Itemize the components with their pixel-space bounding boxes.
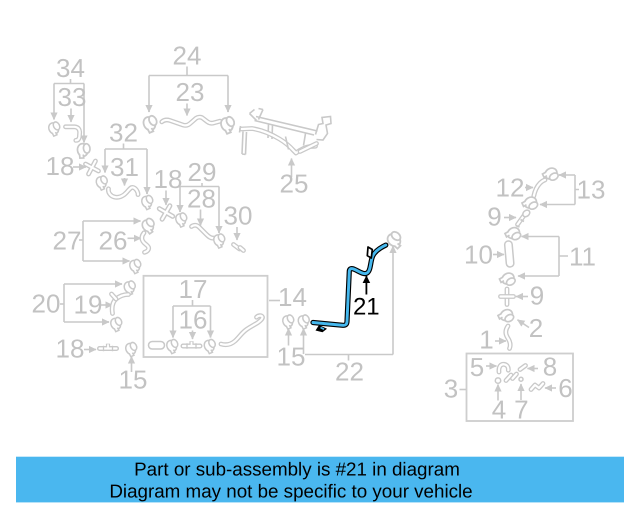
svg-text:20: 20 [32, 289, 61, 319]
svg-text:2: 2 [529, 313, 543, 343]
svg-text:31: 31 [110, 152, 139, 182]
svg-text:15: 15 [277, 342, 306, 372]
svg-text:23: 23 [176, 77, 205, 107]
svg-text:17: 17 [179, 274, 208, 304]
svg-text:5: 5 [470, 352, 484, 382]
svg-text:18: 18 [46, 151, 75, 181]
svg-text:16: 16 [179, 305, 208, 335]
svg-text:13: 13 [577, 175, 606, 205]
svg-text:15: 15 [119, 365, 148, 395]
svg-text:6: 6 [558, 373, 572, 403]
svg-text:11: 11 [569, 242, 596, 272]
svg-text:9: 9 [530, 281, 544, 311]
svg-text:18: 18 [56, 334, 85, 364]
svg-text:4: 4 [492, 395, 506, 425]
svg-text:30: 30 [224, 201, 253, 231]
svg-text:29: 29 [188, 157, 217, 187]
svg-text:10: 10 [464, 240, 493, 270]
svg-text:33: 33 [58, 82, 87, 112]
svg-text:Diagram may not be specific to: Diagram may not be specific to your vehi… [109, 480, 472, 501]
svg-text:8: 8 [543, 352, 557, 382]
svg-text:22: 22 [335, 357, 364, 387]
svg-text:27: 27 [53, 226, 82, 256]
svg-text:3: 3 [444, 374, 458, 404]
svg-text:Part or sub-assembly is #21 in: Part or sub-assembly is #21 in diagram [134, 459, 460, 480]
svg-text:9: 9 [487, 202, 501, 232]
svg-text:24: 24 [173, 41, 202, 71]
svg-text:19: 19 [74, 290, 103, 320]
svg-text:32: 32 [109, 118, 138, 148]
svg-text:26: 26 [99, 226, 128, 256]
svg-text:12: 12 [496, 173, 525, 203]
svg-text:1: 1 [479, 325, 493, 355]
svg-text:21: 21 [353, 294, 380, 321]
svg-text:18: 18 [154, 164, 183, 194]
svg-text:25: 25 [280, 169, 309, 199]
svg-text:34: 34 [56, 53, 85, 83]
svg-text:14: 14 [278, 282, 307, 312]
svg-text:28: 28 [187, 184, 216, 214]
